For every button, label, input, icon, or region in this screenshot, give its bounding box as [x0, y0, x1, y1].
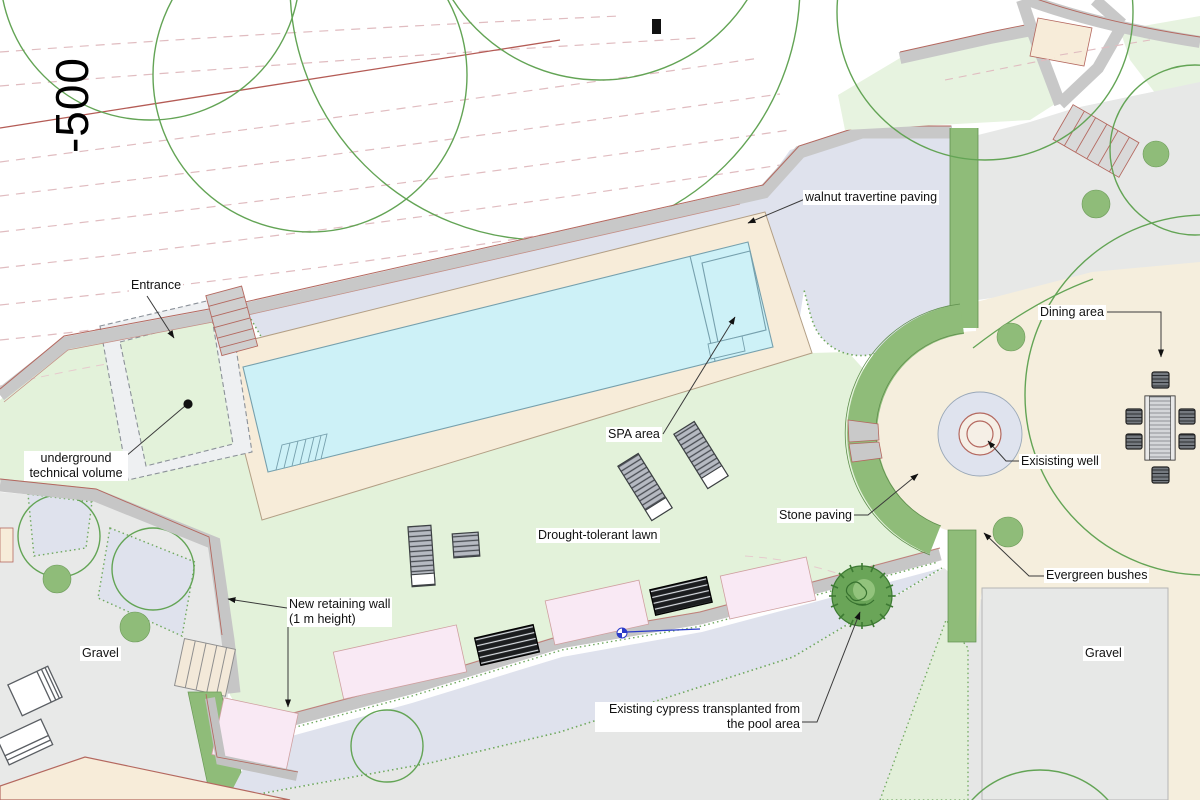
bush [993, 517, 1023, 547]
label-drought-tolerant-lawn: Drought-tolerant lawn [536, 528, 660, 543]
existing-well [938, 392, 1022, 476]
bush [1082, 190, 1110, 218]
label-stone-paving: Stone paving [777, 508, 854, 523]
label-underground-technical-volume: underground technical volume [24, 451, 128, 481]
bush [997, 323, 1025, 351]
elevation-marker: -500 [45, 23, 91, 187]
label-dining-area: Dining area [1038, 305, 1106, 320]
label-existing-cypress: Existing cypress transplanted from the p… [595, 702, 802, 732]
label-existing-well: Exisisting well [1019, 454, 1101, 469]
label-evergreen-bushes: Evergreen bushes [1044, 568, 1149, 583]
site-plan-drawing [0, 0, 1200, 800]
bush [43, 565, 71, 593]
bush [120, 612, 150, 642]
label-spa-area: SPA area [606, 427, 662, 442]
map-mark [652, 19, 661, 34]
label-gravel-right: Gravel [1083, 646, 1124, 661]
label-gravel-left: Gravel [80, 646, 121, 661]
label-walnut-travertine-paving: walnut travertine paving [803, 190, 939, 205]
label-new-retaining-wall: New retaining wall (1 m height) [287, 597, 392, 627]
bush [1143, 141, 1169, 167]
garden-stairs [175, 639, 236, 697]
label-entrance: Entrance [129, 278, 183, 293]
site-plan: -500 Entrance walnut travertine paving u… [0, 0, 1200, 800]
